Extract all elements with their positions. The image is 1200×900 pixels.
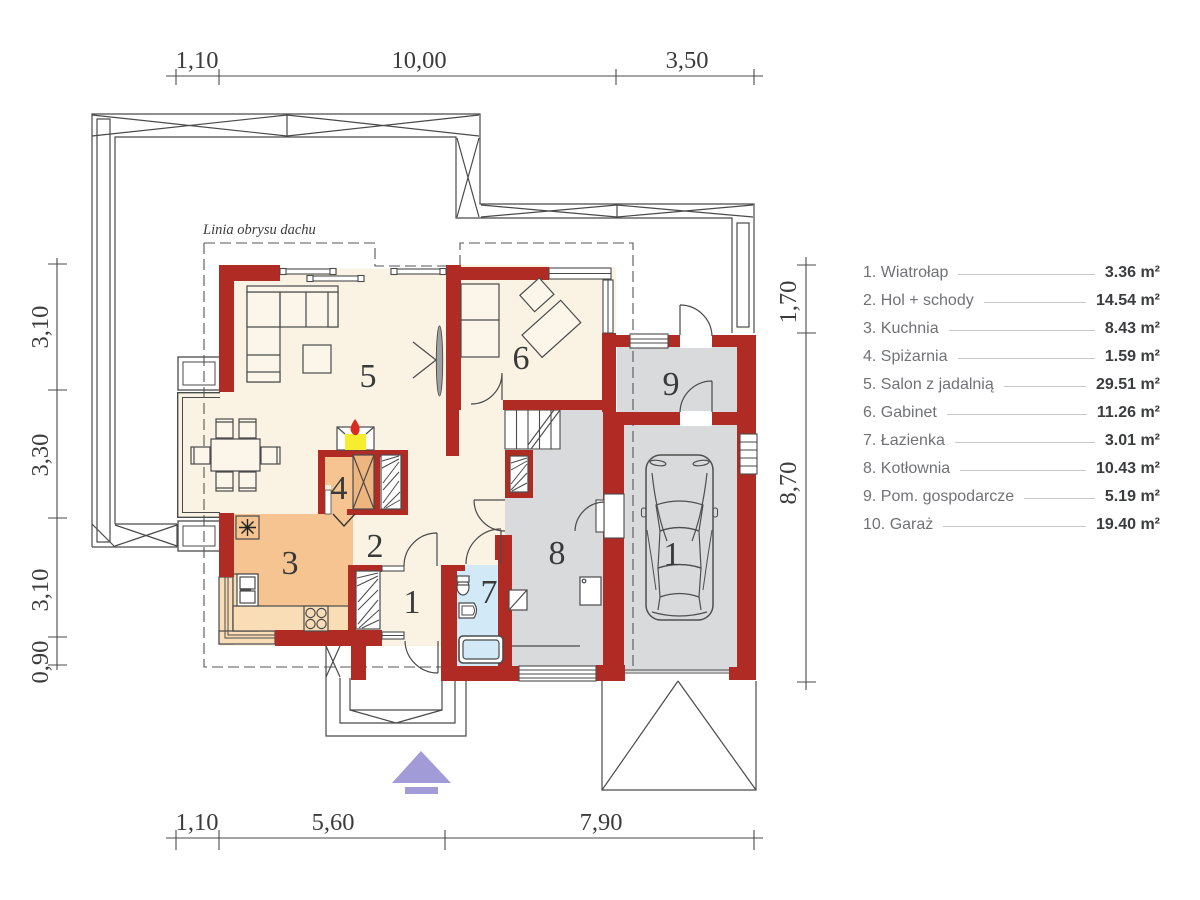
svg-text:5: 5 xyxy=(360,358,377,395)
svg-text:10,00: 10,00 xyxy=(391,47,446,74)
svg-text:7: 7 xyxy=(481,574,498,611)
svg-text:3: 3 xyxy=(282,545,299,582)
svg-text:6: 6 xyxy=(513,340,530,377)
svg-text:1,70: 1,70 xyxy=(775,281,802,324)
svg-text:1: 1 xyxy=(664,536,681,573)
svg-text:4: 4 xyxy=(331,470,348,507)
svg-text:1: 1 xyxy=(404,584,421,621)
svg-text:8: 8 xyxy=(549,535,566,572)
svg-text:3,10: 3,10 xyxy=(27,306,54,349)
svg-text:3,50: 3,50 xyxy=(666,47,709,74)
svg-text:3,10: 3,10 xyxy=(27,569,54,612)
svg-text:Linia obrysu dachu: Linia obrysu dachu xyxy=(202,222,316,238)
svg-text:1,10: 1,10 xyxy=(176,47,219,74)
svg-text:8,70: 8,70 xyxy=(775,462,802,505)
svg-text:5,60: 5,60 xyxy=(312,809,355,836)
svg-text:7,90: 7,90 xyxy=(580,809,623,836)
svg-text:9: 9 xyxy=(663,366,680,403)
svg-text:3,30: 3,30 xyxy=(27,434,54,477)
svg-text:1,10: 1,10 xyxy=(176,809,219,836)
svg-text:0,90: 0,90 xyxy=(27,641,54,684)
svg-text:2: 2 xyxy=(367,528,384,565)
